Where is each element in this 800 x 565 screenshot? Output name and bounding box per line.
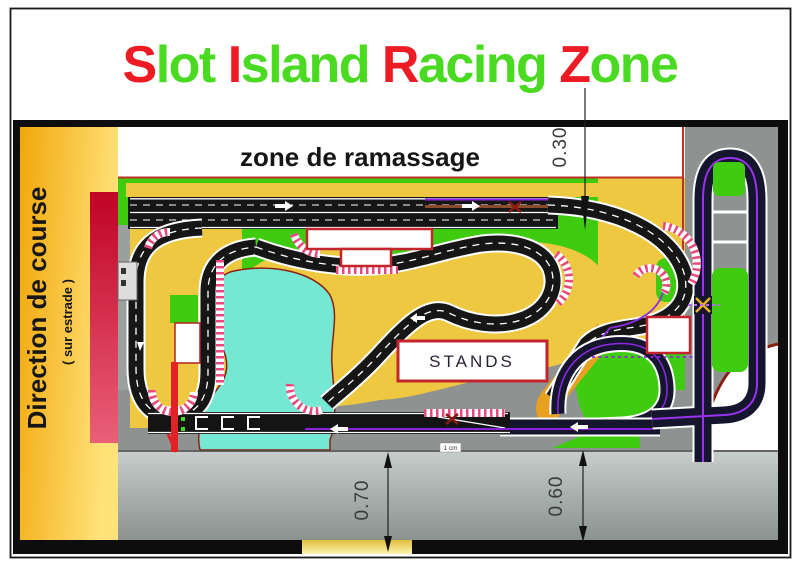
pickup-zone-label: zone de ramassage (240, 142, 480, 172)
measurement-bottom-right-label: 0.60 (546, 476, 567, 517)
measurement-bottom-left-label: 0.70 (352, 480, 373, 521)
title-segment: acing (418, 36, 559, 94)
title-segment: Z (559, 36, 590, 94)
scale-badge: 1 cm (440, 443, 461, 452)
title-segment: lot (156, 36, 228, 94)
title-segment: sland (241, 36, 382, 94)
control-box (118, 262, 137, 300)
small-building (341, 249, 391, 266)
infield-building (175, 323, 200, 363)
race-direction-label: Direction de course (22, 187, 52, 430)
grandstand-building (307, 229, 432, 249)
stand-bar (90, 192, 118, 443)
page-title: Slot Island Racing Zone (123, 36, 679, 94)
measurement-top-label: 0.30 (550, 127, 571, 168)
scale-badge-label: 1 cm (443, 445, 457, 452)
race-direction-sublabel: ( sur estrade ) (60, 279, 75, 365)
title-segment: I (228, 36, 241, 94)
bottom-clearance-band (118, 451, 778, 540)
right-building (647, 317, 690, 353)
title-segment: one (590, 36, 679, 94)
stands-label: STANDS (429, 352, 515, 371)
title-segment: S (123, 36, 156, 94)
bottom-tab (302, 540, 412, 554)
track-plan-canvas: STANDS 1 cm zone de ramassage 0.30 0.70 (0, 0, 800, 565)
stands-box: STANDS (398, 341, 547, 381)
track-plan-poster: STANDS 1 cm zone de ramassage 0.30 0.70 (0, 0, 800, 565)
title-segment: R (382, 36, 419, 94)
